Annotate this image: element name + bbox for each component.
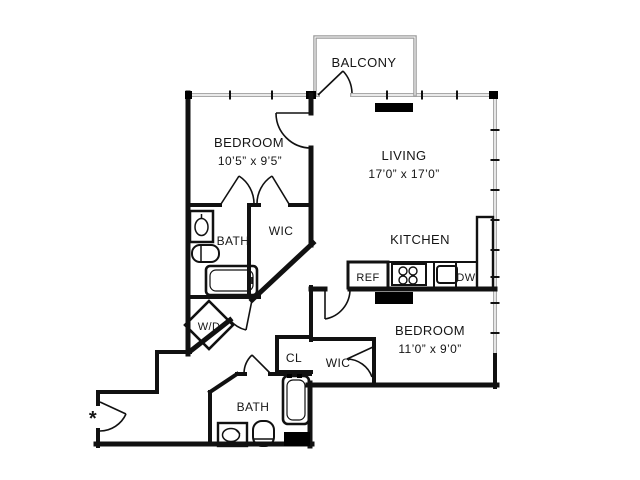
living-label: LIVING [381, 148, 426, 163]
closet-label: CL [286, 351, 302, 365]
balcony-label: BALCONY [332, 55, 397, 70]
bath2-tub [283, 374, 309, 424]
bath1-sink [190, 211, 213, 242]
floor-plan: BALCONY BEDROOM 10’5” x 9’5” LIVING 17’0… [0, 0, 640, 480]
bath2-label: BATH [237, 400, 270, 414]
wall-segment-below-balcony [375, 103, 413, 112]
wic1-label: WIC [269, 224, 294, 238]
wic2-door [347, 347, 373, 377]
kitchen-label: KITCHEN [390, 232, 450, 247]
bath2-door [244, 355, 270, 373]
bedroom2-label: BEDROOM [395, 323, 465, 338]
entry-door [100, 402, 126, 431]
bedroom1-label: BEDROOM [214, 135, 284, 150]
bedroom2-dims: 11’0” x 9’0” [398, 342, 461, 356]
entry-marker: * [89, 408, 97, 430]
wall-segment-bath2 [284, 432, 310, 446]
bedroom2-door [325, 289, 350, 319]
dishwasher-label: DW [456, 272, 475, 284]
bedroom1-closet-doors [221, 176, 289, 204]
bath1-label: BATH [217, 234, 250, 248]
bath1-toilet [192, 245, 219, 262]
window-ticks [230, 91, 500, 334]
floor-plan-drawing: BALCONY BEDROOM 10’5” x 9’5” LIVING 17’0… [0, 0, 640, 480]
living-dims: 17’0” x 17’0” [368, 167, 439, 181]
kitchen-sink [437, 266, 457, 283]
wic2-label: WIC [326, 356, 351, 370]
laundry-label: W/D [198, 321, 221, 333]
wall-segment-below-kitchen [375, 292, 413, 304]
refrigerator-label: REF [356, 272, 379, 284]
kitchen-stove [392, 264, 426, 285]
balcony-door [318, 71, 352, 95]
bedroom1-dims: 10’5” x 9’5” [218, 154, 282, 168]
